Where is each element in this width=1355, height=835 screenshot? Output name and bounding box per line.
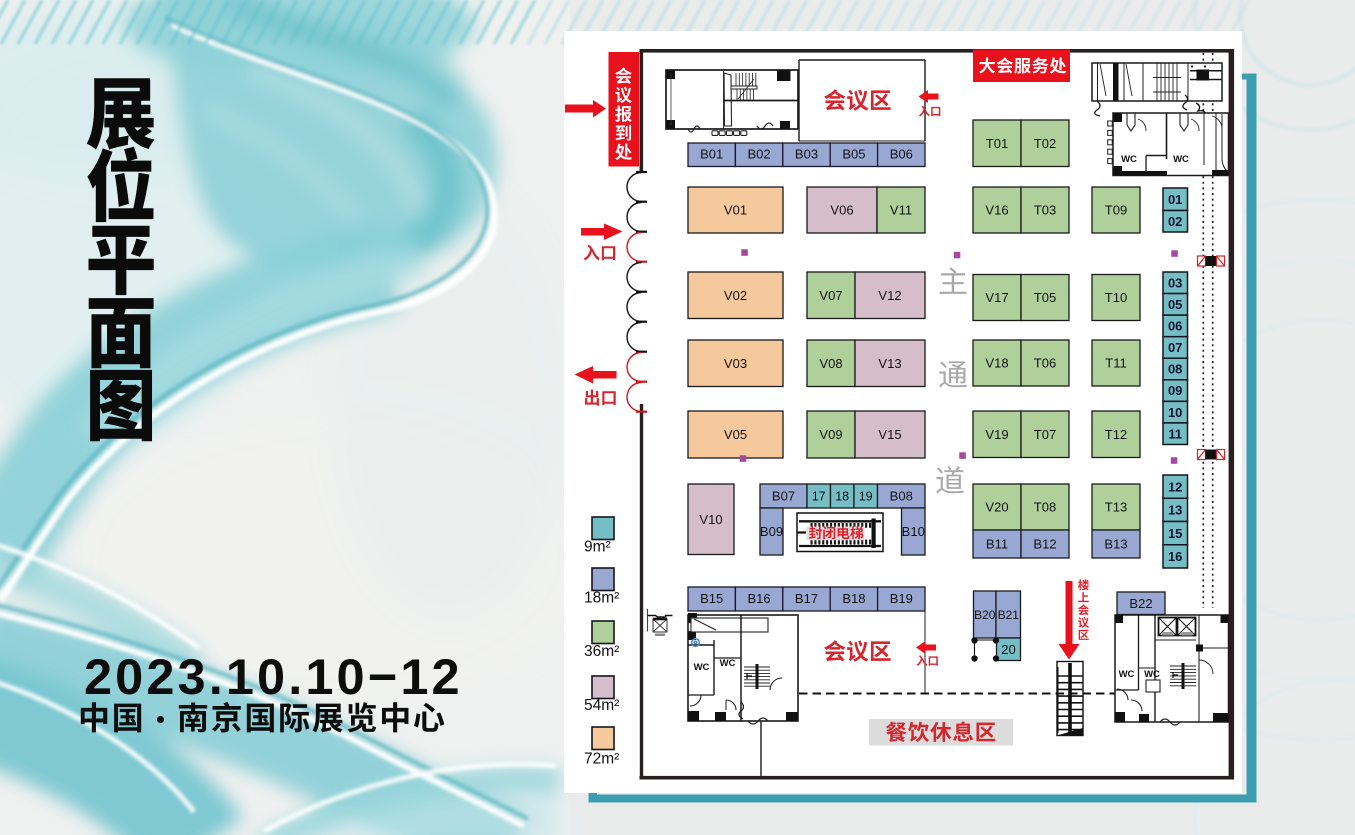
svg-text:V15: V15 xyxy=(878,427,901,442)
svg-text:B06: B06 xyxy=(890,147,913,162)
svg-text:16: 16 xyxy=(1168,549,1182,564)
svg-text:T11: T11 xyxy=(1105,356,1126,371)
svg-text:WC: WC xyxy=(1173,154,1189,165)
svg-text:T12: T12 xyxy=(1105,427,1127,442)
svg-text:V10: V10 xyxy=(699,512,722,527)
svg-text:18m²: 18m² xyxy=(584,590,619,607)
svg-text:B15: B15 xyxy=(700,591,723,606)
svg-text:WC: WC xyxy=(694,662,710,673)
svg-text:T01: T01 xyxy=(986,136,1008,151)
svg-text:B17: B17 xyxy=(795,591,818,606)
svg-text:V08: V08 xyxy=(819,356,842,371)
svg-text:10: 10 xyxy=(1168,405,1182,420)
svg-text:07: 07 xyxy=(1168,340,1182,355)
svg-text:03: 03 xyxy=(1168,275,1182,290)
svg-text:B13: B13 xyxy=(1104,537,1127,552)
svg-text:V13: V13 xyxy=(878,356,901,371)
svg-text:05: 05 xyxy=(1168,297,1182,312)
svg-text:B08: B08 xyxy=(890,489,913,504)
svg-text:B19: B19 xyxy=(890,591,913,606)
svg-text:WC: WC xyxy=(1121,154,1137,165)
svg-text:V18: V18 xyxy=(985,356,1008,371)
svg-text:01: 01 xyxy=(1168,192,1182,207)
svg-text:11: 11 xyxy=(1168,426,1182,441)
svg-text:WC: WC xyxy=(1144,669,1160,680)
svg-text:17: 17 xyxy=(812,490,826,504)
svg-text:T03: T03 xyxy=(1034,203,1056,218)
svg-text:B01: B01 xyxy=(700,147,723,162)
svg-text:V20: V20 xyxy=(985,500,1008,515)
svg-text:V06: V06 xyxy=(830,203,853,218)
svg-text:T06: T06 xyxy=(1034,356,1056,371)
svg-text:B07: B07 xyxy=(772,489,795,504)
svg-text:V19: V19 xyxy=(985,427,1008,442)
svg-text:T13: T13 xyxy=(1105,500,1127,515)
svg-text:72m²: 72m² xyxy=(584,751,619,768)
svg-text:B11: B11 xyxy=(986,537,1008,552)
svg-text:19: 19 xyxy=(859,490,873,504)
svg-text:B20: B20 xyxy=(974,608,996,622)
svg-text:V16: V16 xyxy=(985,203,1008,218)
svg-text:2023.10.10−12: 2023.10.10−12 xyxy=(84,648,463,705)
svg-text:B16: B16 xyxy=(748,591,771,606)
svg-text:36m²: 36m² xyxy=(584,643,619,660)
svg-text:9m²: 9m² xyxy=(584,539,611,556)
svg-text:B18: B18 xyxy=(842,591,865,606)
svg-text:B05: B05 xyxy=(842,147,865,162)
svg-text:B22: B22 xyxy=(1129,596,1152,611)
svg-text:V01: V01 xyxy=(724,203,747,218)
svg-text:B21: B21 xyxy=(998,608,1020,622)
svg-text:T07: T07 xyxy=(1034,427,1056,442)
svg-text:V07: V07 xyxy=(819,288,842,303)
svg-text:T08: T08 xyxy=(1034,500,1056,515)
svg-text:T10: T10 xyxy=(1105,290,1127,305)
svg-text:13: 13 xyxy=(1168,503,1182,518)
svg-text:B03: B03 xyxy=(795,147,818,162)
svg-text:B02: B02 xyxy=(748,147,771,162)
svg-text:V03: V03 xyxy=(724,356,747,371)
svg-text:06: 06 xyxy=(1168,319,1182,334)
svg-text:54m²: 54m² xyxy=(584,697,619,714)
svg-text:WC: WC xyxy=(720,658,736,669)
svg-text:T02: T02 xyxy=(1034,136,1056,151)
svg-text:WC: WC xyxy=(1119,669,1135,680)
svg-text:B09: B09 xyxy=(760,524,783,539)
svg-text:V17: V17 xyxy=(985,290,1008,305)
svg-text:09: 09 xyxy=(1168,383,1182,398)
svg-text:V09: V09 xyxy=(819,427,842,442)
svg-text:B12: B12 xyxy=(1033,537,1056,552)
svg-text:12: 12 xyxy=(1168,479,1182,494)
svg-text:18: 18 xyxy=(835,490,849,504)
svg-text:15: 15 xyxy=(1168,526,1182,541)
svg-text:08: 08 xyxy=(1168,362,1182,377)
svg-text:T05: T05 xyxy=(1034,290,1056,305)
svg-text:V12: V12 xyxy=(878,288,901,303)
svg-text:V02: V02 xyxy=(724,288,747,303)
svg-text:20: 20 xyxy=(1001,642,1015,657)
svg-text:02: 02 xyxy=(1168,214,1182,229)
svg-text:B10: B10 xyxy=(902,524,925,539)
svg-text:T09: T09 xyxy=(1105,203,1127,218)
svg-text:V11: V11 xyxy=(890,203,912,218)
svg-text:V05: V05 xyxy=(724,427,747,442)
